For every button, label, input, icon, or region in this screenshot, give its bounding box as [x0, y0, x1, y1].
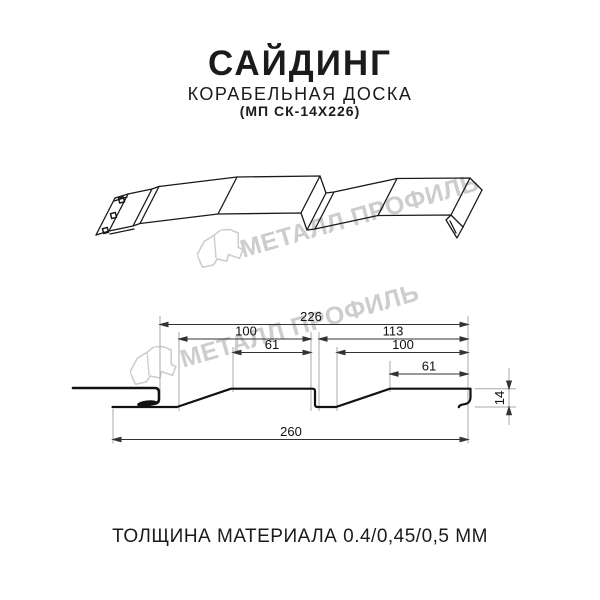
profile-3d-back-edge — [115, 176, 482, 198]
dim-label-260: 260 — [280, 424, 302, 439]
dim-label-14: 14 — [492, 391, 507, 405]
profile-3d-front-edge — [96, 213, 463, 235]
dim-label-226: 226 — [300, 309, 322, 324]
profile-3d-view — [96, 176, 482, 238]
dimension-lines — [113, 322, 511, 441]
product-subtitle: КОРАБЕЛЬНАЯ ДОСКА — [0, 84, 600, 105]
extension-lines — [113, 316, 516, 444]
catalog-diagram-page: { "header": { "title": "САЙДИНГ", "subti… — [0, 0, 600, 600]
page-title: САЙДИНГ — [0, 44, 600, 84]
section-profile-outline — [113, 389, 471, 408]
dim-label-61-left: 61 — [265, 337, 279, 352]
cross-section-view: 226 100 113 61 100 61 260 14 — [73, 309, 516, 444]
dim-label-100-left: 100 — [235, 324, 257, 339]
section-lock-joint — [73, 388, 159, 408]
dim-label-100-right: 100 — [392, 337, 414, 352]
product-code: (МП СК-14Х226) — [0, 103, 600, 119]
dim-label-61-right: 61 — [422, 359, 436, 374]
material-thickness-note: ТОЛЩИНА МАТЕРИАЛА 0.4/0,45/0,5 ММ — [0, 526, 600, 548]
profile-3d-ridges — [96, 176, 482, 235]
